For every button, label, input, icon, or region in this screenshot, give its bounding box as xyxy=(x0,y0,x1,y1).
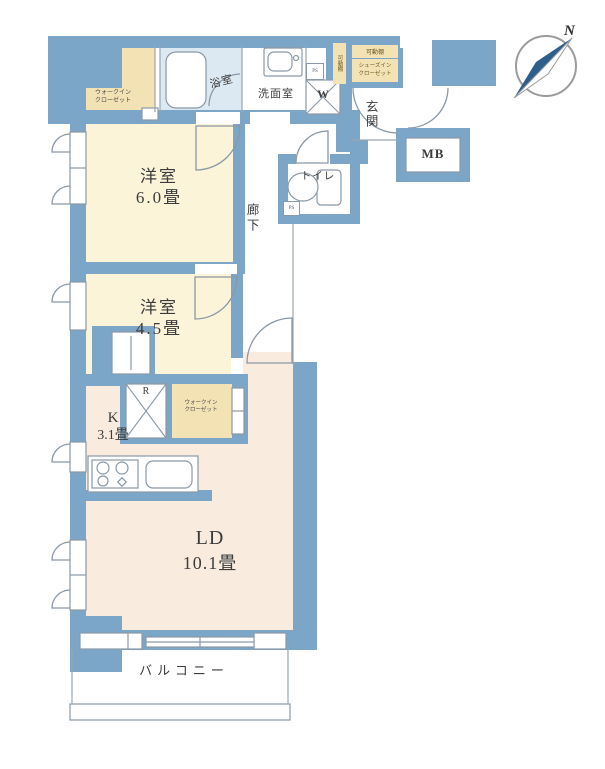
stove-burner-3 xyxy=(98,476,108,486)
wall-ld-right xyxy=(293,362,317,650)
entrance-label: 玄関 xyxy=(362,100,378,129)
wic1-door xyxy=(142,108,158,120)
window-arc-3 xyxy=(52,284,70,302)
hallway-label: 廊下 xyxy=(243,203,259,234)
wall-toilet-right xyxy=(350,154,360,224)
vanity-faucet xyxy=(294,56,299,61)
wic2-line2: クローゼット xyxy=(184,407,217,413)
kitchen-name: K xyxy=(108,410,119,426)
window-arc-1 xyxy=(52,134,70,152)
stove-burner-1 xyxy=(97,462,109,474)
window-ld-bottom-left xyxy=(80,633,142,649)
door-arc-entrance-2 xyxy=(408,88,448,128)
room2-label: 洋室4.5畳 xyxy=(100,297,218,340)
meter-box-label: MB xyxy=(406,146,460,162)
fridge-label: R xyxy=(126,386,166,399)
movable-shelf-horizontal: 可動棚 xyxy=(352,45,398,58)
wall-block-topright xyxy=(432,40,496,86)
window-arc-6 xyxy=(52,590,70,608)
balcony-rail xyxy=(70,704,290,720)
room1-size: 6.0畳 xyxy=(136,188,182,207)
wall-kitchen-top xyxy=(86,374,122,386)
room2-size: 4.5畳 xyxy=(136,319,182,338)
wic1-floor xyxy=(120,47,155,88)
wic2-line1: ウォークイン xyxy=(184,400,217,406)
kitchen-size: 3.1畳 xyxy=(97,428,129,443)
compass xyxy=(514,36,576,98)
gap-room1-door xyxy=(196,112,240,124)
window-room2 xyxy=(70,282,86,330)
toilet-label: トイレ xyxy=(290,170,346,183)
room1-label: 洋室6.0畳 xyxy=(100,166,218,209)
floor-plan-drawing xyxy=(0,0,605,769)
window-arc-2 xyxy=(52,186,70,204)
bathtub xyxy=(166,52,206,108)
pipe-space-1: PS xyxy=(306,63,324,80)
window-arc-5 xyxy=(52,542,70,560)
wall-room2-hall xyxy=(231,274,243,358)
washer-label: W xyxy=(309,88,337,102)
vanity-basin xyxy=(268,52,292,71)
shoes-in-closet-label: シューズインクローゼット xyxy=(352,59,398,82)
gap-washroom-door xyxy=(250,112,290,124)
sic-lines: シューズインクローゼット xyxy=(358,63,391,77)
pipe-space-2: PS xyxy=(283,201,300,216)
stove-burner-2 xyxy=(116,462,128,474)
kitchen-label: K3.1畳 xyxy=(80,410,146,445)
sic-line2: クローゼット xyxy=(358,71,391,77)
wall-topleft-2 xyxy=(86,36,122,88)
room1-name: 洋室 xyxy=(140,167,178,186)
ld-size: 10.1畳 xyxy=(183,553,238,573)
window-ld-bottom-right xyxy=(254,633,286,649)
kitchen-sink xyxy=(146,461,192,488)
movable-shelf-vertical: 可動棚 xyxy=(333,43,346,84)
ld-label: LD10.1畳 xyxy=(148,526,272,576)
sic-line1: シューズイン xyxy=(359,63,392,69)
window-arc-4 xyxy=(52,444,70,462)
room2-name: 洋室 xyxy=(140,298,178,317)
gap-room2-door xyxy=(195,264,237,274)
window-kitchen xyxy=(70,442,86,472)
washroom-label: 洗面室 xyxy=(246,88,306,102)
north-label: N xyxy=(564,22,575,41)
wic1-label: ウォークインクローゼット xyxy=(82,90,144,106)
floor-plan: 洋室6.0畳 洋室4.5畳 K3.1畳 LD10.1畳 バルコニー 玄関 廊下 … xyxy=(0,0,605,769)
ld-name: LD xyxy=(196,527,225,549)
wic2-label: ウォークインクローゼット xyxy=(172,400,230,414)
wic1-line2: クローゼット xyxy=(95,98,131,104)
wic1-line1: ウォークイン xyxy=(95,90,131,96)
balcony-label: バルコニー xyxy=(104,663,264,679)
